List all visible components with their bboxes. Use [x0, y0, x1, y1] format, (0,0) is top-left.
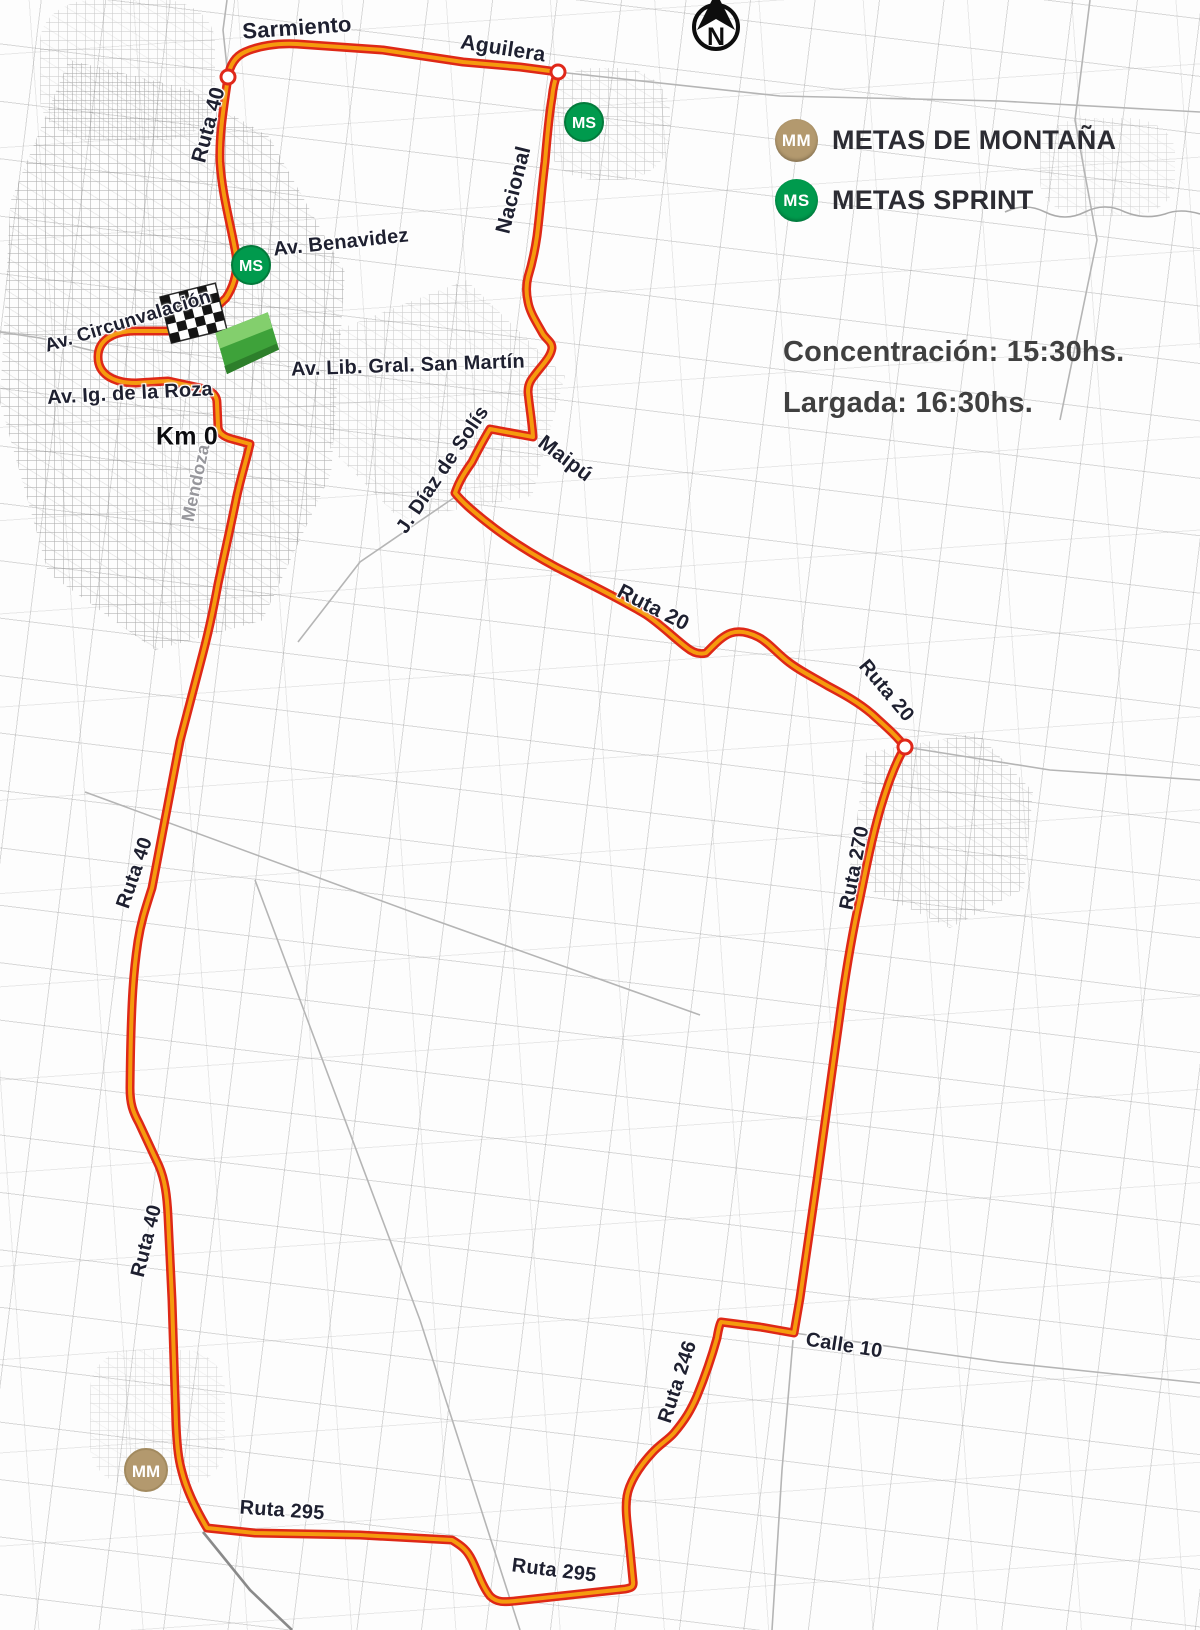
sprint-marker-1: MS	[565, 103, 603, 141]
race-route	[98, 44, 905, 1602]
sprint-legend-label: METAS SPRINT	[832, 185, 1033, 216]
race-route-casing	[98, 44, 905, 1602]
race-route-map: MS MS MM N Sarmiento Aguilera Ruta 40 Av…	[0, 0, 1200, 1630]
legend-mountain-row: MM METAS DE MONTAÑA	[775, 119, 1116, 162]
waypoint-nw	[221, 70, 235, 84]
route-vector-layer: MS MS MM N	[0, 0, 1200, 1630]
mountain-legend-icon: MM	[775, 119, 818, 162]
compass-icon: N	[694, 0, 738, 51]
mountain-marker-1: MM	[125, 1449, 167, 1491]
mountain-marker-1-code: MM	[132, 1462, 160, 1481]
compass-letter: N	[707, 23, 725, 51]
sprint-marker-1-code: MS	[572, 115, 596, 132]
sprint-legend-icon: MS	[775, 179, 818, 222]
sprint-marker-2-code: MS	[239, 258, 263, 275]
concentracion-time: Concentración: 15:30hs.	[783, 336, 1124, 369]
waypoint-ne	[551, 65, 565, 79]
rural-roads	[0, 0, 1200, 1630]
waypoint-ruta20-270	[898, 740, 912, 754]
mountain-legend-label: METAS DE MONTAÑA	[832, 125, 1116, 156]
sprint-marker-2: MS	[232, 246, 270, 284]
legend-sprint-row: MS METAS SPRINT	[775, 179, 1033, 222]
largada-time: Largada: 16:30hs.	[783, 387, 1033, 420]
rural-road-dark	[203, 1532, 292, 1630]
